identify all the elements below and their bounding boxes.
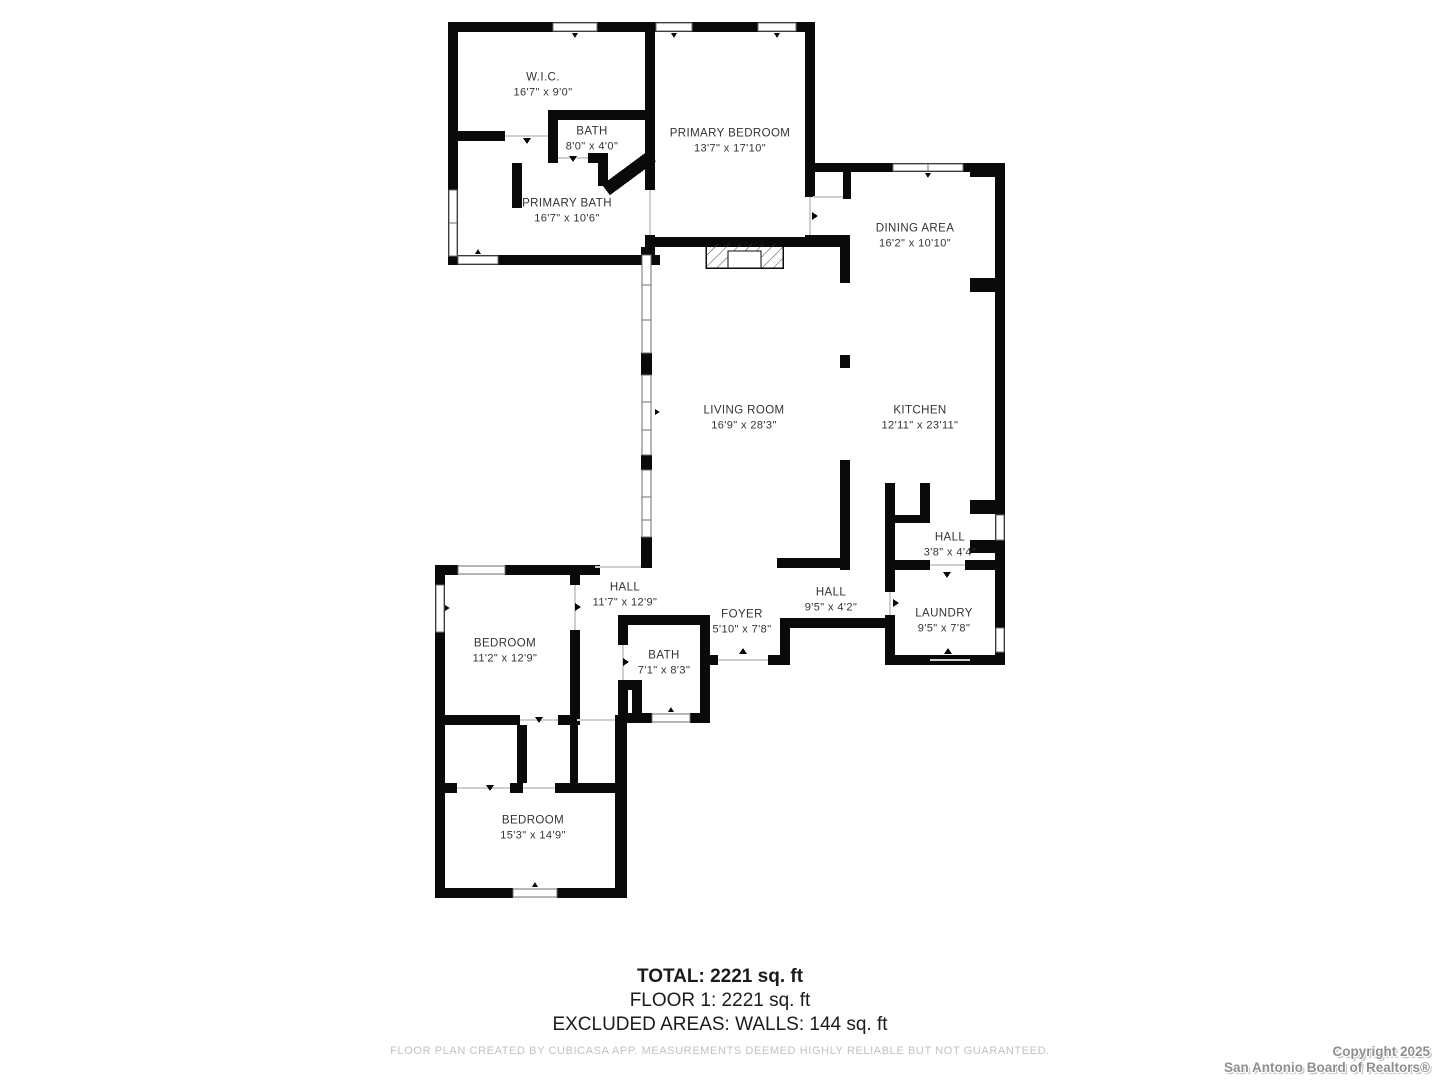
- room-name: FOYER: [712, 609, 771, 621]
- room-dims: 16'7" x 10'6": [522, 213, 612, 225]
- room-dims: 5'10" x 7'8": [712, 624, 771, 636]
- fireplace: [706, 243, 783, 268]
- total-area-text: TOTAL: 2221 sq. ft: [0, 966, 1440, 988]
- room-label-hall-rear: HALL 9'5" x 4'2": [805, 587, 858, 614]
- copyright-line-2: San Antonio Board of Realtors®: [1224, 1060, 1430, 1076]
- room-name: HALL: [924, 532, 977, 544]
- room-dims: 7'1" x 8'3": [638, 665, 691, 677]
- room-dims: 11'2" x 12'9": [473, 653, 538, 665]
- floorplan-drawing: [0, 0, 1440, 1080]
- copyright-line-1: Copyright 2025: [1224, 1044, 1430, 1060]
- room-dims: 15'3" x 14'9": [500, 830, 566, 842]
- room-label-hall-main: HALL 11'7" x 12'9": [593, 582, 658, 609]
- room-name: BATH: [638, 650, 691, 662]
- room-name: PRIMARY BATH: [522, 198, 612, 210]
- floor1-area-text: FLOOR 1: 2221 sq. ft: [0, 990, 1440, 1012]
- room-dims: 11'7" x 12'9": [593, 597, 658, 609]
- room-dims: 12'11" x 23'11": [882, 420, 959, 432]
- room-name: BEDROOM: [473, 638, 538, 650]
- room-dims: 13'7" x 17'10": [670, 143, 791, 155]
- room-label-bedroom-3: BEDROOM 15'3" x 14'9": [500, 815, 566, 842]
- room-name: BEDROOM: [500, 815, 566, 827]
- room-label-dining-area: DINING AREA 16'2" x 10'10": [876, 223, 955, 250]
- room-label-foyer: FOYER 5'10" x 7'8": [712, 609, 771, 636]
- room-dims: 16'7" x 9'0": [513, 87, 572, 99]
- room-dims: 16'2" x 10'10": [876, 238, 955, 250]
- room-label-primary-suite-bath: BATH 8'0" x 4'0": [566, 126, 619, 153]
- room-dims: 9'5" x 4'2": [805, 602, 858, 614]
- room-name: LIVING ROOM: [703, 405, 784, 417]
- room-label-bedroom-2: BEDROOM 11'2" x 12'9": [473, 638, 538, 665]
- room-name: KITCHEN: [882, 405, 959, 417]
- room-dims: 9'5" x 7'8": [915, 623, 973, 635]
- room-label-laundry: LAUNDRY 9'5" x 7'8": [915, 608, 973, 635]
- area-summary: TOTAL: 2221 sq. ft FLOOR 1: 2221 sq. ft …: [0, 966, 1440, 1036]
- room-name: HALL: [593, 582, 658, 594]
- floorplan-page: W.I.C. 16'7" x 9'0" BATH 8'0" x 4'0" PRI…: [0, 0, 1440, 1080]
- room-dims: 16'9" x 28'3": [703, 420, 784, 432]
- room-name: DINING AREA: [876, 223, 955, 235]
- room-dims: 3'8" x 4'4": [924, 547, 977, 559]
- room-name: HALL: [805, 587, 858, 599]
- copyright-watermark: Copyright 2025 San Antonio Board of Real…: [1224, 1044, 1430, 1076]
- room-label-hall-small: HALL 3'8" x 4'4": [924, 532, 977, 559]
- excluded-area-text: EXCLUDED AREAS: WALLS: 144 sq. ft: [0, 1014, 1440, 1036]
- room-name: BATH: [566, 126, 619, 138]
- room-name: W.I.C.: [513, 72, 572, 84]
- room-label-kitchen: KITCHEN 12'11" x 23'11": [882, 405, 959, 432]
- room-dims: 8'0" x 4'0": [566, 141, 619, 153]
- room-label-bath-2: BATH 7'1" x 8'3": [638, 650, 691, 677]
- room-label-primary-bedroom: PRIMARY BEDROOM 13'7" x 17'10": [670, 128, 791, 155]
- room-name: LAUNDRY: [915, 608, 973, 620]
- room-label-primary-bath: PRIMARY BATH 16'7" x 10'6": [522, 198, 612, 225]
- room-name: PRIMARY BEDROOM: [670, 128, 791, 140]
- room-label-wic: W.I.C. 16'7" x 9'0": [513, 72, 572, 99]
- room-label-living-room: LIVING ROOM 16'9" x 28'3": [703, 405, 784, 432]
